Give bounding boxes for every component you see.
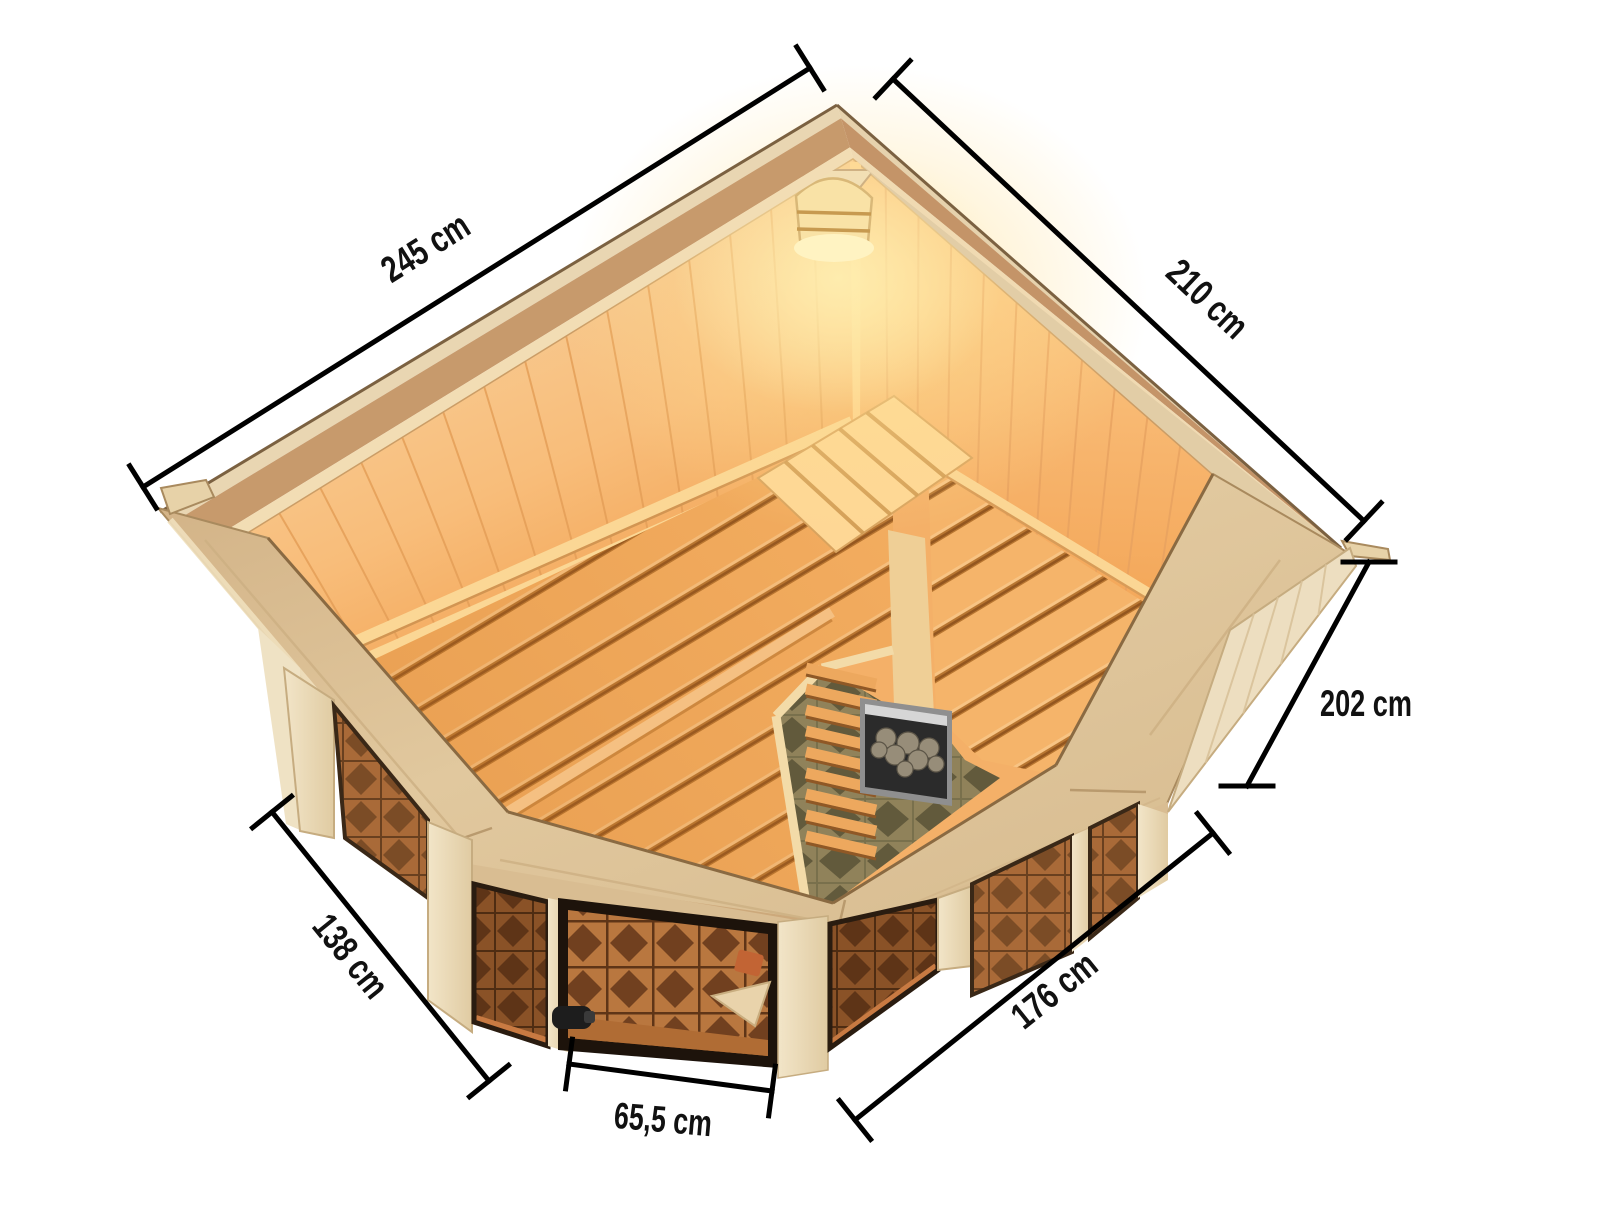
- svg-text:202 cm: 202 cm: [1320, 683, 1412, 724]
- svg-text:65,5 cm: 65,5 cm: [612, 1095, 713, 1144]
